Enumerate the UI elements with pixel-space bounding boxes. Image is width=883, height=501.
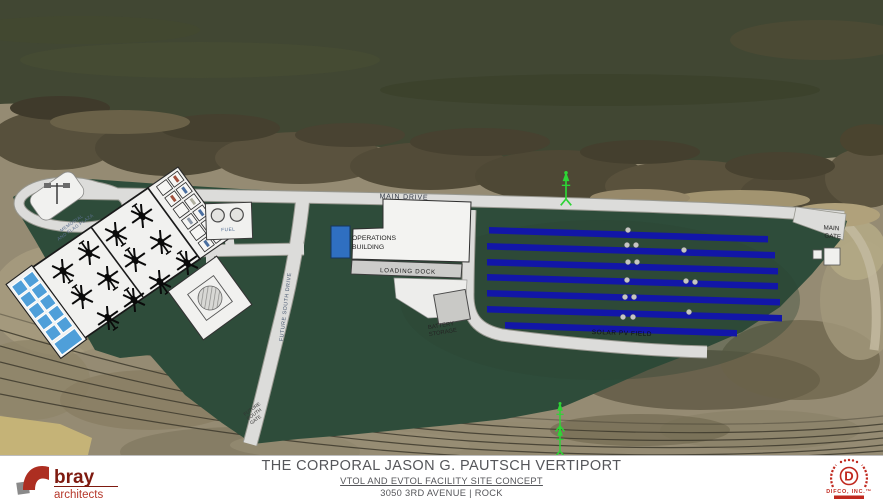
main-drive-label: MAIN DRIVE <box>379 193 428 201</box>
project-title: THE CORPORAL JASON G. PAUTSCH VERTIPORT <box>0 458 883 475</box>
fuel-farm: FUEL <box>205 202 252 240</box>
title-block: bray architects THE CORPORAL JASON G. PA… <box>0 455 883 501</box>
fuel-tank <box>230 208 243 221</box>
site-plan-rendering: MEMORIAL AND FLAG PLAZA <box>0 0 883 455</box>
site-concept-sheet: MEMORIAL AND FLAG PLAZA <box>0 0 883 501</box>
drawing-subtitle: VTOL AND EVTOL FACILITY SITE CONCEPT <box>0 475 883 487</box>
fuel-label: FUEL <box>221 227 235 233</box>
project-address: 3050 3RD AVENUE | ROCK <box>0 487 883 499</box>
main-gate-label: MAIN GATE <box>823 224 842 240</box>
drawing-titles: THE CORPORAL JASON G. PAUTSCH VERTIPORT … <box>0 458 883 499</box>
difco-name: DIFCO, INC.™ <box>826 489 872 495</box>
ops-entry-canopy <box>331 226 350 258</box>
difco-monogram: D <box>844 469 853 484</box>
fuel-tank <box>211 209 224 222</box>
difco-logo: D DIFCO, INC.™ <box>821 457 877 501</box>
